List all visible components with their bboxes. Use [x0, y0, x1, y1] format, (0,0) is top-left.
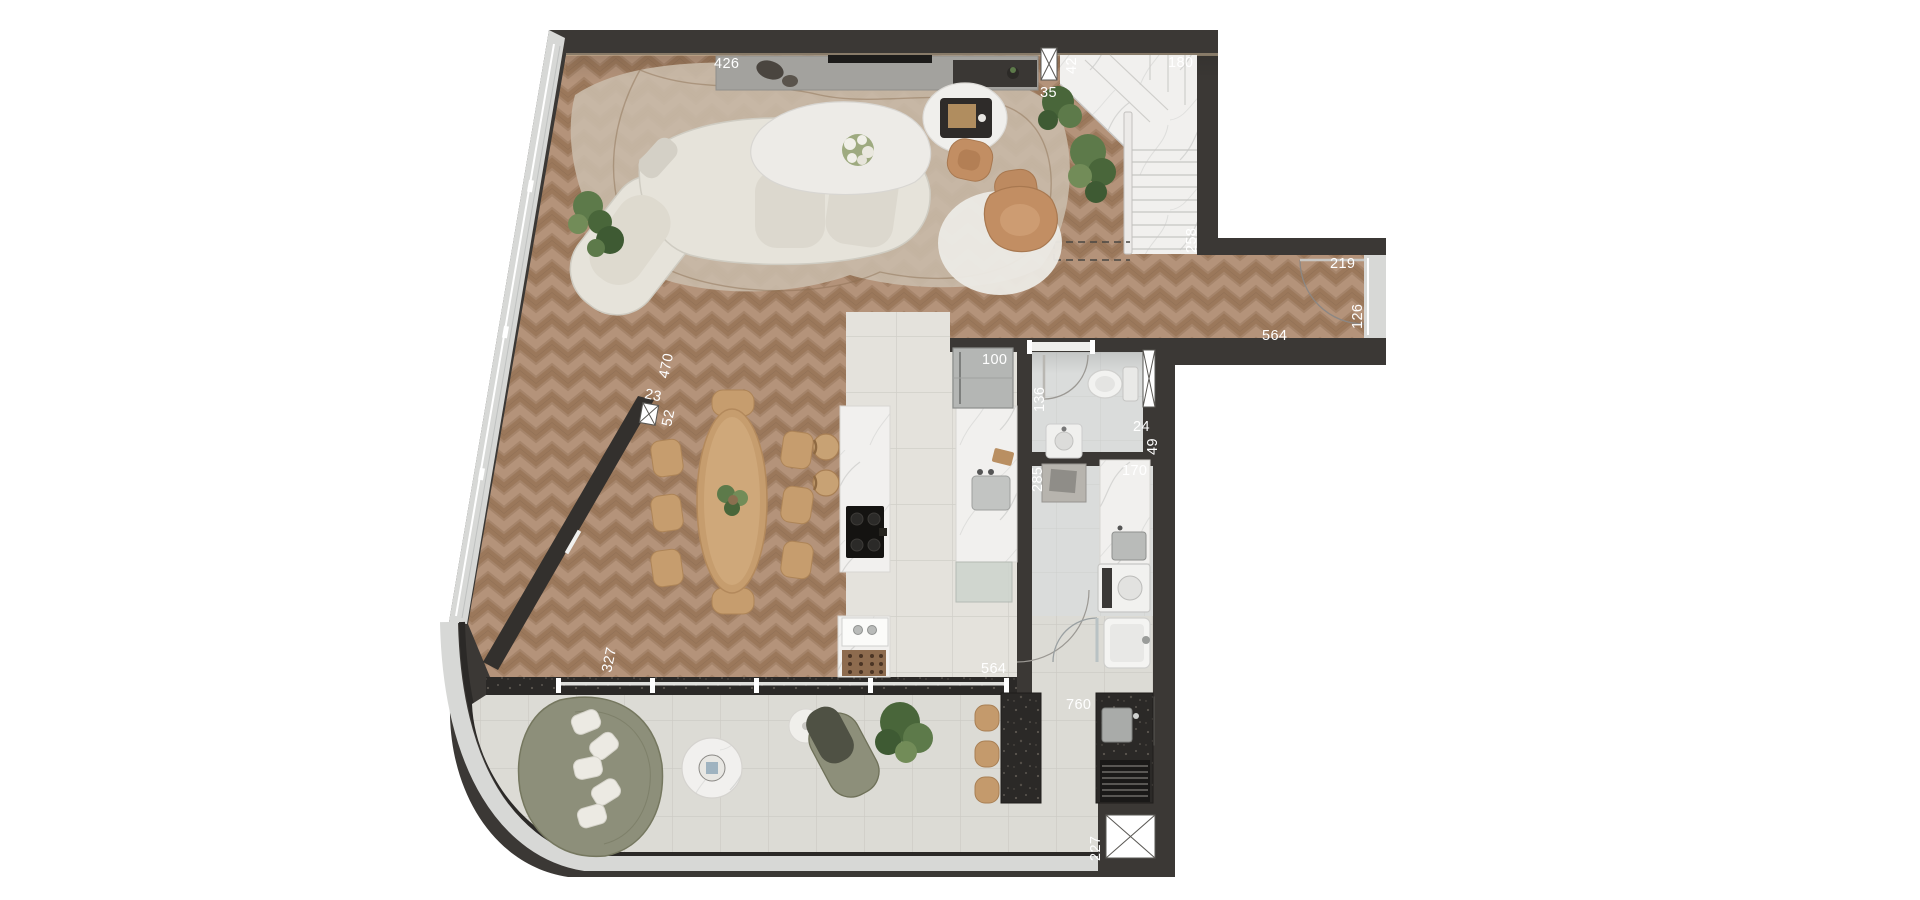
terrace-side-table	[682, 738, 742, 798]
terrace-wall-band	[486, 677, 1017, 695]
dim-terrace-length: 760	[1066, 697, 1091, 713]
grill	[1100, 760, 1150, 802]
dim-bathroom-pier: 24	[1133, 419, 1150, 435]
dim-stair-door: 35	[1040, 85, 1057, 101]
tv-console	[716, 55, 1038, 90]
bar-counter	[1001, 693, 1041, 803]
laundry-tub	[1104, 618, 1150, 668]
floor-plan-page: 426 35 42 180 258 219 126 564 470 23 52 …	[0, 0, 1920, 900]
dim-living-north: 426	[714, 56, 739, 72]
armchair	[984, 186, 1057, 251]
outdoor-sink	[1102, 708, 1132, 742]
dim-stair-window: 42	[1064, 57, 1080, 74]
dim-laundry-width: 170	[1122, 463, 1147, 479]
dim-hallway-width: 219	[1330, 256, 1355, 272]
dim-terrace-opening: 564	[981, 661, 1006, 677]
outdoor-kitchen	[1096, 693, 1153, 803]
west-small-window-icon	[639, 403, 658, 425]
dim-hallway-length: 564	[1262, 328, 1287, 344]
stair-window-icon	[1041, 48, 1057, 80]
flower-vase	[842, 134, 874, 166]
dim-stair-width: 180	[1168, 55, 1193, 71]
floor-plan-canvas: 426 35 42 180 258 219 126 564 470 23 52 …	[0, 0, 1920, 900]
dim-bathroom-depth: 136	[1032, 387, 1048, 412]
dim-hallway-door: 126	[1350, 304, 1366, 329]
dim-stair-depth: 258	[1184, 228, 1200, 253]
indoor-bbq-counter	[838, 616, 890, 677]
dim-bathroom-shaft: 49	[1145, 438, 1161, 455]
hallway-end-opening	[1364, 255, 1386, 338]
washbasin	[1046, 424, 1082, 458]
toilet	[1088, 367, 1138, 401]
stair-handrail	[1124, 112, 1132, 254]
bathroom-shaft-icon	[1143, 350, 1155, 407]
dim-shaft-width: 227	[1088, 836, 1104, 861]
dim-laundry-depth: 285	[1030, 467, 1046, 492]
terrace-shaft-large-icon	[1106, 815, 1155, 858]
cooktop	[846, 506, 887, 558]
dim-kitchen-counter: 100	[982, 352, 1007, 368]
glass-cabinet	[956, 562, 1012, 602]
laundry-bench	[1042, 464, 1086, 502]
bar-stools	[975, 705, 999, 803]
outdoor-curved-sofa	[519, 697, 663, 856]
washer	[1098, 564, 1150, 612]
